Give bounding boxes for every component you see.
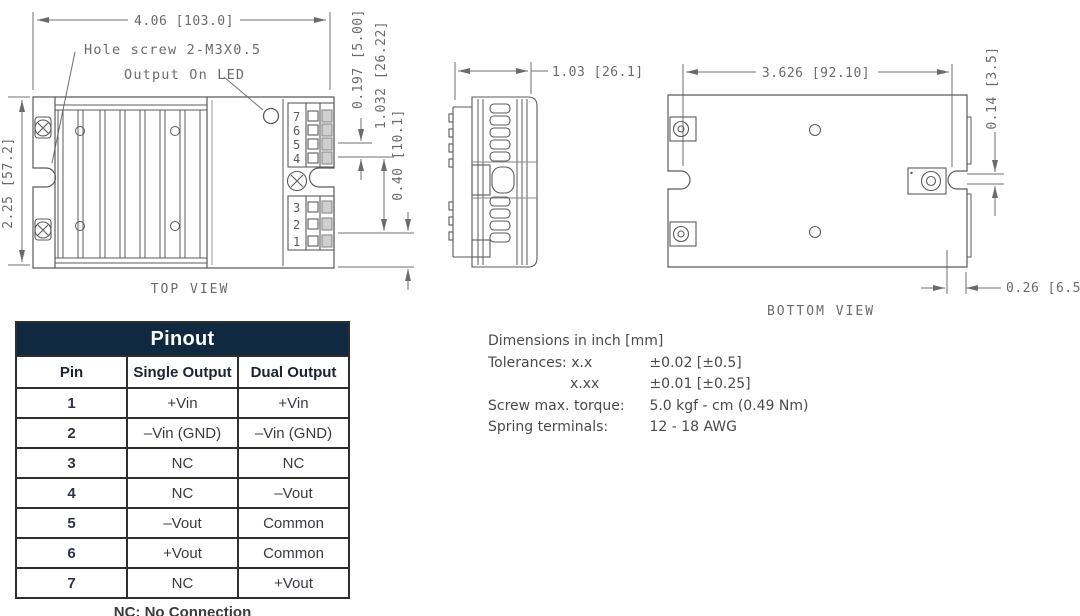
datasheet-page: 7 6 5 4 3 2 1 4.06 [103.0] Hole screw 2-	[0, 0, 1080, 616]
dual-output-cell: –Vin (GND)	[238, 418, 349, 448]
tolerance-label: Tolerances: x.x	[488, 353, 645, 375]
dual-output-cell: –Vout	[238, 478, 349, 508]
terminal-screw	[288, 172, 307, 191]
single-output-cell: +Vout	[127, 538, 238, 568]
note-row: Tolerances: x.x ±0.02 [±0.5]	[488, 353, 808, 375]
edge-offset-dimension: 0.26 [6.5]	[1006, 281, 1080, 296]
bottom-outline	[668, 95, 971, 267]
led-indicator	[264, 109, 279, 124]
pin-pitch-dimension: 0.197 [5.00]	[351, 9, 366, 109]
notes-section: Dimensions in inch [mm] Tolerances: x.x …	[488, 331, 808, 439]
side-profile	[449, 97, 537, 267]
top-view-drawing: 7 6 5 4 3 2 1 4.06 [103.0] Hole screw 2-	[0, 0, 450, 300]
note-row: Screw max. torque: 5.0 kgf - cm (0.49 Nm…	[488, 396, 808, 418]
pin-cell: 4	[16, 478, 127, 508]
pin-cell: 1	[16, 388, 127, 418]
pin-cell: 6	[16, 538, 127, 568]
spring-terminals-value: 12 - 18 AWG	[649, 419, 737, 435]
pin-cell: 2	[16, 418, 127, 448]
pin-numbers-bottom: 3 2 1	[293, 201, 300, 249]
top-width-dimension: 4.06 [103.0]	[134, 14, 234, 29]
side-width-dimension: 1.03 [26.1]	[552, 65, 644, 80]
column-header-dual: Dual Output	[238, 356, 349, 388]
pin-number: 6	[293, 124, 300, 138]
pin-numbers-top: 7 6 5 4	[293, 110, 300, 166]
pin-number: 3	[293, 201, 300, 215]
bottom-view-dimension-lines	[683, 64, 1004, 294]
pinout-title: Pinout	[16, 322, 349, 356]
pin-number: 4	[293, 152, 300, 166]
bottom-view-caption: BOTTOM VIEW	[767, 304, 875, 319]
pinout-table: Pinout Pin Single Output Dual Output 1 +…	[15, 321, 350, 599]
single-output-cell: –Vin (GND)	[127, 418, 238, 448]
torque-value: 5.0 kgf - cm (0.49 Nm)	[649, 398, 808, 414]
pin-number: 1	[293, 235, 300, 249]
single-output-cell: –Vout	[127, 508, 238, 538]
single-output-cell: NC	[127, 568, 238, 598]
table-row: 3 NC NC	[16, 448, 349, 478]
side-view-drawing: 1.03 [26.1]	[440, 55, 670, 300]
tolerance2-label: x.xx	[488, 374, 645, 396]
pin-cell: 3	[16, 448, 127, 478]
tolerance2-value: ±0.01 [±0.25]	[649, 376, 750, 392]
units-note: Dimensions in inch [mm]	[488, 333, 663, 349]
side-view-dimension-lines	[455, 62, 548, 100]
pin-cell: 5	[16, 508, 127, 538]
pinout-section: Pinout Pin Single Output Dual Output 1 +…	[15, 321, 350, 616]
table-row: 5 –Vout Common	[16, 508, 349, 538]
bottom-mounting-tabs	[670, 117, 946, 246]
torque-label: Screw max. torque:	[488, 396, 645, 418]
heatsink-fins	[55, 105, 207, 263]
dual-output-cell: Common	[238, 508, 349, 538]
single-output-cell: NC	[127, 448, 238, 478]
dual-output-cell: +Vout	[238, 568, 349, 598]
note-row: Dimensions in inch [mm]	[488, 331, 808, 353]
bottom-view-drawing: 3.626 [92.10] 0.14 [3.5] 0.26 [6.5] BOTT…	[650, 40, 1080, 320]
spring-terminals-label: Spring terminals:	[488, 417, 645, 439]
top-view-caption: TOP VIEW	[151, 282, 230, 297]
bottom-holes	[810, 125, 821, 238]
column-header-single: Single Output	[127, 356, 238, 388]
bottom-width-dimension: 3.626 [92.10]	[762, 66, 870, 81]
note-row: x.xx ±0.01 [±0.25]	[488, 374, 808, 396]
pin-number: 7	[293, 110, 300, 124]
table-row: 2 –Vin (GND) –Vin (GND)	[16, 418, 349, 448]
table-row: 6 +Vout Common	[16, 538, 349, 568]
single-output-cell: +Vin	[127, 388, 238, 418]
dual-output-cell: +Vin	[238, 388, 349, 418]
pin-number: 5	[293, 138, 300, 152]
bottom-offset-dimension: 0.40 [10.1]	[391, 109, 406, 201]
note-row: Spring terminals: 12 - 18 AWG	[488, 417, 808, 439]
hole-screw-label: Hole screw 2-M3X0.5	[84, 42, 261, 58]
tolerance-value: ±0.02 [±0.5]	[649, 355, 741, 371]
pin-cell: 7	[16, 568, 127, 598]
dual-output-cell: NC	[238, 448, 349, 478]
nc-footnote: NC: No Connection	[15, 604, 350, 616]
mounting-screw	[35, 117, 51, 240]
table-row: 4 NC –Vout	[16, 478, 349, 508]
terminal-span-dimension: 1.032 [26.22]	[374, 21, 389, 129]
pin-number: 2	[293, 218, 300, 232]
led-label: Output On LED	[124, 67, 245, 83]
single-output-cell: NC	[127, 478, 238, 508]
table-row: 1 +Vin +Vin	[16, 388, 349, 418]
notch-dimension: 0.14 [3.5]	[985, 46, 1000, 129]
dual-output-cell: Common	[238, 538, 349, 568]
top-height-dimension: 2.25 [57.2]	[1, 137, 16, 229]
column-header-pin: Pin	[16, 356, 127, 388]
table-row: 7 NC +Vout	[16, 568, 349, 598]
